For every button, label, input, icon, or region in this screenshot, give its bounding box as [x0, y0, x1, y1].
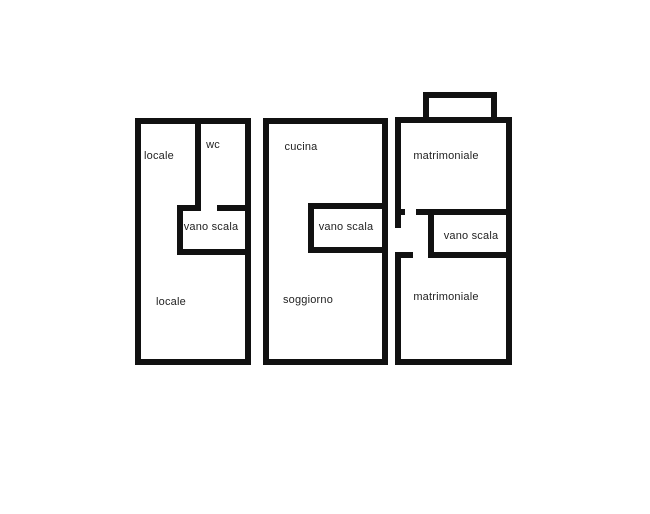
wall [382, 118, 388, 365]
room-label-vano-scala-left: vano scala [184, 221, 239, 233]
wall-stairbox-left [177, 205, 183, 255]
wall [506, 117, 512, 365]
wall-interior-lower [428, 252, 512, 258]
wall [135, 118, 251, 124]
floorplan-canvas: locale wc vano scala locale cucina vano … [0, 0, 650, 514]
floorplan-drawing [0, 0, 650, 514]
wall-interior-lower [395, 252, 413, 258]
room-label-vano-scala-right: vano scala [444, 230, 499, 242]
room-label-locale-bottom: locale [156, 296, 186, 308]
wall-stairbox-top [308, 203, 388, 209]
wall-stairbox-bottom [177, 249, 251, 255]
wall-interior-upper [395, 209, 405, 215]
wall-stairbox-bottom [308, 247, 388, 253]
wall [245, 118, 251, 365]
wall [395, 359, 512, 365]
wall-balcony-right [491, 92, 497, 117]
room-label-matrimoniale-bottom: matrimoniale [413, 291, 478, 303]
wall [263, 118, 388, 124]
wall [395, 117, 512, 123]
room-label-soggiorno: soggiorno [283, 294, 333, 306]
wall-stairbox-left [308, 203, 314, 253]
room-label-locale-top: locale [144, 150, 174, 162]
wall [263, 359, 388, 365]
wall [135, 359, 251, 365]
wall [395, 252, 401, 365]
wall [263, 118, 269, 365]
wall-stairbox-top [217, 205, 251, 211]
room-label-cucina: cucina [285, 141, 318, 153]
room-label-matrimoniale-top: matrimoniale [413, 150, 478, 162]
room-label-vano-scala-middle: vano scala [319, 221, 374, 233]
wall-divider-wc [195, 118, 201, 211]
wall-balcony-top [423, 92, 497, 98]
middle-unit-walls [263, 118, 388, 365]
room-label-wc: wc [206, 139, 220, 151]
wall-balcony-left [423, 92, 429, 117]
wall-stairbox-left [428, 209, 434, 258]
wall [135, 118, 141, 365]
right-unit-walls [395, 92, 512, 365]
